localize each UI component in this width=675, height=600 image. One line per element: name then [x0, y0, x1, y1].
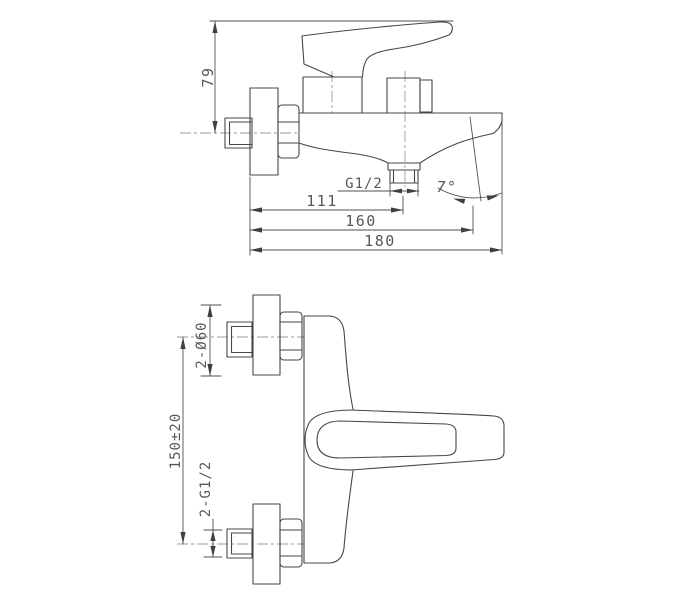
spout-collar — [388, 163, 420, 170]
side-view: 79 G1/2 111 160 — [180, 21, 502, 255]
dim-handle-height-label: 79 — [199, 66, 217, 87]
inlet-pipe-thread — [232, 533, 253, 554]
dim-arrow — [250, 227, 262, 232]
dim-arrow — [212, 21, 217, 33]
dim-arrow — [210, 546, 215, 557]
shower-port — [387, 78, 420, 113]
dim-inlet-spacing: 150±20 — [168, 337, 186, 544]
technical-drawing: 79 G1/2 111 160 — [0, 0, 675, 600]
dim-arrow — [212, 121, 217, 133]
wall-flange — [250, 88, 278, 175]
wall-flange — [253, 295, 280, 375]
dim-overall-depth-label: 180 — [364, 232, 396, 250]
dim-arrow — [407, 189, 419, 194]
cartridge-housing — [303, 77, 362, 113]
handle-knob — [305, 410, 353, 470]
hex-nut — [280, 312, 302, 360]
dim-flange-diameter-label: 2-Ø60 — [194, 321, 210, 368]
dim-arrow — [390, 189, 402, 194]
dim-arrow — [180, 337, 185, 349]
dim-outlet-thread-label: G1/2 — [345, 176, 383, 192]
handle-lever — [302, 22, 452, 77]
inlet-pipe-thread — [232, 327, 253, 353]
dim-arrow — [207, 305, 212, 317]
dim-arrow — [210, 530, 215, 541]
body-outline — [304, 316, 353, 563]
dim-inlet-thread: 2-G1/2 — [198, 461, 222, 557]
dim-arrow — [490, 247, 502, 252]
dim-flange-diameter: 2-Ø60 — [194, 305, 221, 376]
dim-arrow — [461, 227, 473, 232]
inlet-pipe-stub — [227, 322, 252, 357]
dim-spout-reach-label: 160 — [345, 212, 377, 230]
dim-inlet-thread-label: 2-G1/2 — [198, 461, 214, 518]
dim-arrow — [180, 532, 185, 544]
dim-arrow — [391, 207, 403, 212]
dim-face-angle: 7° — [436, 117, 502, 204]
dim-arrow — [250, 207, 262, 212]
handle-lever-top-face — [317, 421, 456, 458]
spout-thread — [390, 170, 418, 183]
drawing-canvas: 79 G1/2 111 160 — [0, 0, 675, 600]
handle-lever-outline — [351, 410, 504, 470]
dim-inlet-spacing-label: 150±20 — [168, 413, 184, 470]
hex-nut — [278, 105, 299, 158]
shower-port-cap — [420, 80, 432, 112]
dim-arrow — [250, 247, 262, 252]
hex-nut — [280, 519, 302, 567]
dim-outlet-offset-label: 111 — [306, 192, 338, 210]
body-underside — [299, 143, 388, 163]
dim-outlet-thread: G1/2 — [338, 176, 419, 196]
plan-view: 2-Ø60 150±20 2-G1/2 — [168, 295, 504, 584]
body-top-and-front — [299, 113, 502, 163]
dim-face-angle-label: 7° — [436, 178, 457, 196]
